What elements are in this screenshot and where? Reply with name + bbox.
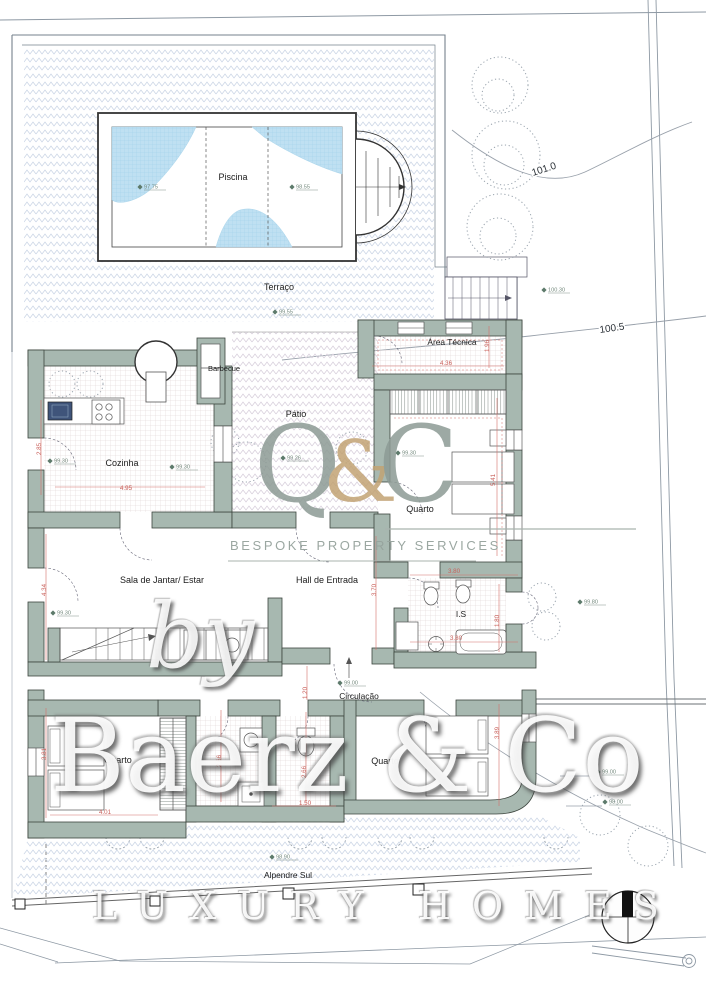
svg-text:99.30: 99.30 bbox=[54, 459, 68, 465]
wardrobe-west bbox=[160, 718, 186, 810]
room-label-hall: Hall de Entrada bbox=[296, 575, 358, 585]
elevation-marker: 99.80 bbox=[577, 599, 606, 605]
bed-south bbox=[426, 716, 488, 796]
logo-rules bbox=[228, 529, 636, 561]
room-label-terraco: Terraço bbox=[264, 282, 294, 292]
svg-text:98.00: 98.00 bbox=[609, 800, 623, 806]
elevation-marker: 99.30 bbox=[395, 450, 424, 456]
svg-text:99.55: 99.55 bbox=[279, 310, 293, 316]
room-label-circulacao: Circulação bbox=[339, 691, 379, 701]
terrace-stairs bbox=[445, 257, 527, 319]
svg-text:99.30: 99.30 bbox=[57, 611, 71, 617]
svg-text:99.80: 99.80 bbox=[584, 600, 598, 606]
elevation-marker: 99.00 bbox=[595, 769, 624, 775]
svg-text:99.30: 99.30 bbox=[176, 465, 190, 471]
dim-area-tecnica-w: 4.36 bbox=[440, 360, 453, 367]
floor-plan-page: Piscina 101.0 100.5 bbox=[0, 0, 706, 1000]
floor-plan-drawing: Piscina 101.0 100.5 bbox=[0, 0, 706, 1000]
svg-text:98.55: 98.55 bbox=[296, 185, 310, 191]
contour-label-101: 101.0 bbox=[531, 161, 559, 179]
elevation-marker: 100.30 bbox=[541, 287, 570, 293]
room-label-quarto-este: Quarto bbox=[406, 504, 434, 514]
dim-is-w: 3.80 bbox=[448, 568, 461, 575]
bed-west bbox=[48, 726, 104, 810]
dim-quarto-sul-h: 3.89 bbox=[494, 726, 501, 739]
svg-text:97.75: 97.75 bbox=[144, 185, 158, 191]
dim-is-h: 1.80 bbox=[494, 614, 501, 627]
dim-area-tecnica-h: 1.96 bbox=[484, 339, 491, 352]
dim-cozinha-h: 2.85 bbox=[36, 442, 43, 455]
dim-quarto-oeste-h: 3.81 bbox=[41, 747, 48, 760]
room-label-sala: Sala de Jantar/ Estar bbox=[120, 575, 204, 585]
dim-sala-h: 4.34 bbox=[41, 583, 48, 596]
room-label-quarto-oeste: Quarto bbox=[104, 755, 132, 765]
dim-quarto-oeste-w: 4.01 bbox=[99, 809, 112, 816]
bed-east bbox=[452, 430, 514, 534]
room-label-alpendre: Alpendre Sul bbox=[264, 870, 312, 880]
dim-cozinha-w: 4.95 bbox=[120, 485, 133, 492]
room-label-patio: Pátio bbox=[286, 409, 307, 419]
patio-paving bbox=[232, 332, 378, 512]
room-label-is: I.S bbox=[456, 609, 467, 619]
kitchen-counter bbox=[44, 398, 124, 424]
north-arrow-icon bbox=[602, 891, 654, 943]
dim-corredor: 1.20 bbox=[302, 686, 309, 699]
room-label-quarto-sul: Quarto bbox=[371, 756, 399, 766]
stove bbox=[92, 400, 120, 424]
room-label-barbecue: Barbecue bbox=[208, 364, 240, 373]
dim-quarto-este-h: 5.41 bbox=[490, 473, 497, 486]
circulation-arrow bbox=[346, 657, 352, 678]
dim-hall-h: 3.70 bbox=[371, 583, 378, 596]
svg-text:99.00: 99.00 bbox=[602, 770, 616, 776]
dim-bath-a: 2.66 bbox=[216, 754, 223, 767]
elevation-marker: 98.00 bbox=[602, 799, 631, 805]
elevation-marker: 99.30 bbox=[50, 610, 79, 616]
room-label-area-tecnica: Área Técnica bbox=[427, 337, 477, 347]
svg-text:98.90: 98.90 bbox=[276, 855, 290, 861]
contour-label-100-5: 100.5 bbox=[599, 322, 626, 336]
dim-bath-b: 2.66 bbox=[301, 765, 308, 778]
svg-text:100.30: 100.30 bbox=[548, 288, 565, 294]
room-label-piscina: Piscina bbox=[218, 172, 247, 182]
svg-text:99.26: 99.26 bbox=[287, 456, 301, 462]
svg-text:99.00: 99.00 bbox=[344, 681, 358, 687]
dim-is-w2: 3.80 bbox=[450, 635, 463, 642]
wardrobe-east bbox=[390, 390, 506, 414]
room-label-cozinha: Cozinha bbox=[105, 458, 138, 468]
dim-bath-w: 1.50 bbox=[299, 800, 312, 807]
svg-text:99.30: 99.30 bbox=[402, 451, 416, 457]
elevation-marker: 99.00 bbox=[337, 680, 366, 686]
